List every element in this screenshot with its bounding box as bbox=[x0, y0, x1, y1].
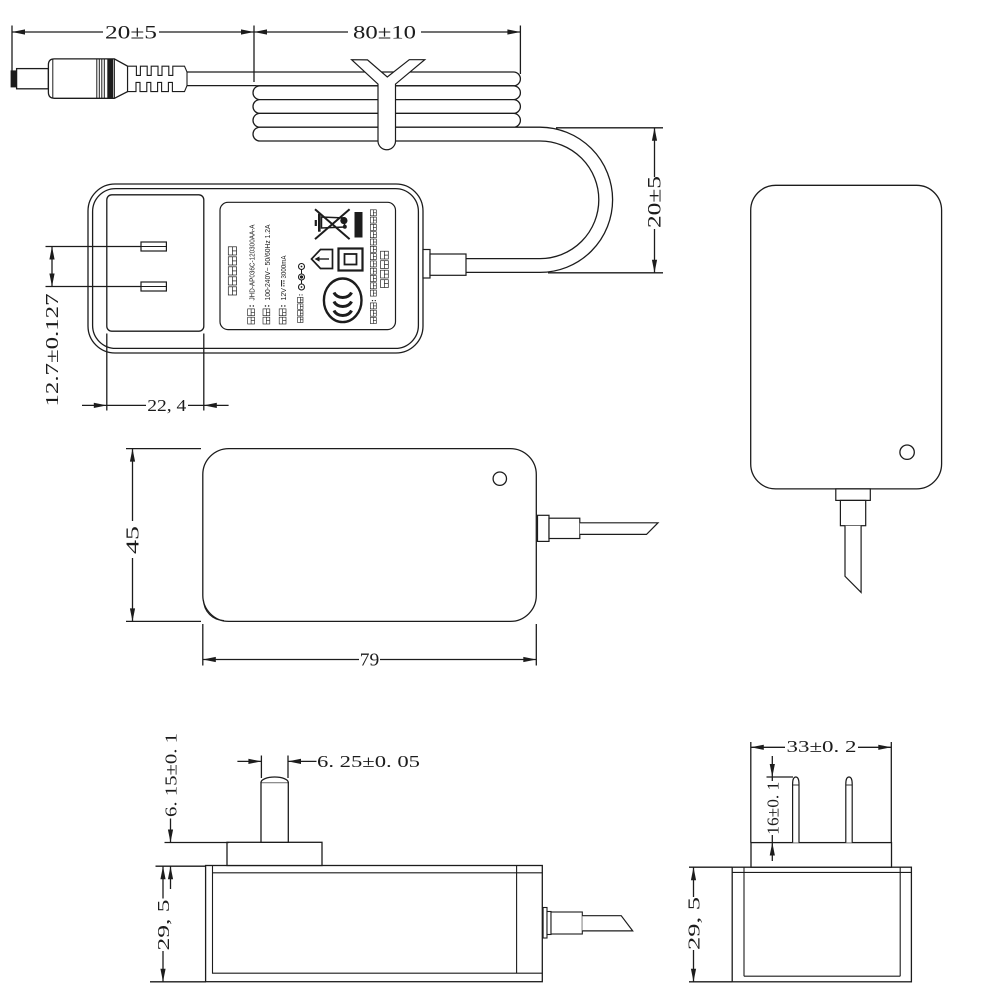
svg-text:16±0. 1: 16±0. 1 bbox=[763, 782, 782, 835]
svg-text:22, 4: 22, 4 bbox=[147, 396, 187, 415]
svg-text:45: 45 bbox=[123, 526, 143, 554]
svg-text:20±5: 20±5 bbox=[105, 23, 157, 44]
svg-text:JHD-AP036C-120300AA-A: JHD-AP036C-120300AA-A bbox=[250, 224, 257, 300]
svg-text:29, 5: 29, 5 bbox=[154, 900, 173, 951]
svg-text:79: 79 bbox=[360, 650, 380, 670]
svg-text:6. 15±0. 1: 6. 15±0. 1 bbox=[162, 733, 181, 817]
svg-text:3000mA: 3000mA bbox=[281, 255, 288, 278]
svg-text:80±10: 80±10 bbox=[353, 23, 416, 44]
svg-text:100-240V~ 50/60Hz 1.2A: 100-240V~ 50/60Hz 1.2A bbox=[265, 224, 272, 300]
svg-text:12V: 12V bbox=[281, 288, 288, 301]
svg-text:33±0. 2: 33±0. 2 bbox=[787, 737, 857, 756]
svg-text:6. 25±0. 05: 6. 25±0. 05 bbox=[317, 752, 420, 771]
svg-text:29, 5: 29, 5 bbox=[685, 897, 704, 950]
svg-text:20±5: 20±5 bbox=[645, 176, 666, 228]
svg-text:12.7±0.127: 12.7±0.127 bbox=[42, 293, 62, 406]
